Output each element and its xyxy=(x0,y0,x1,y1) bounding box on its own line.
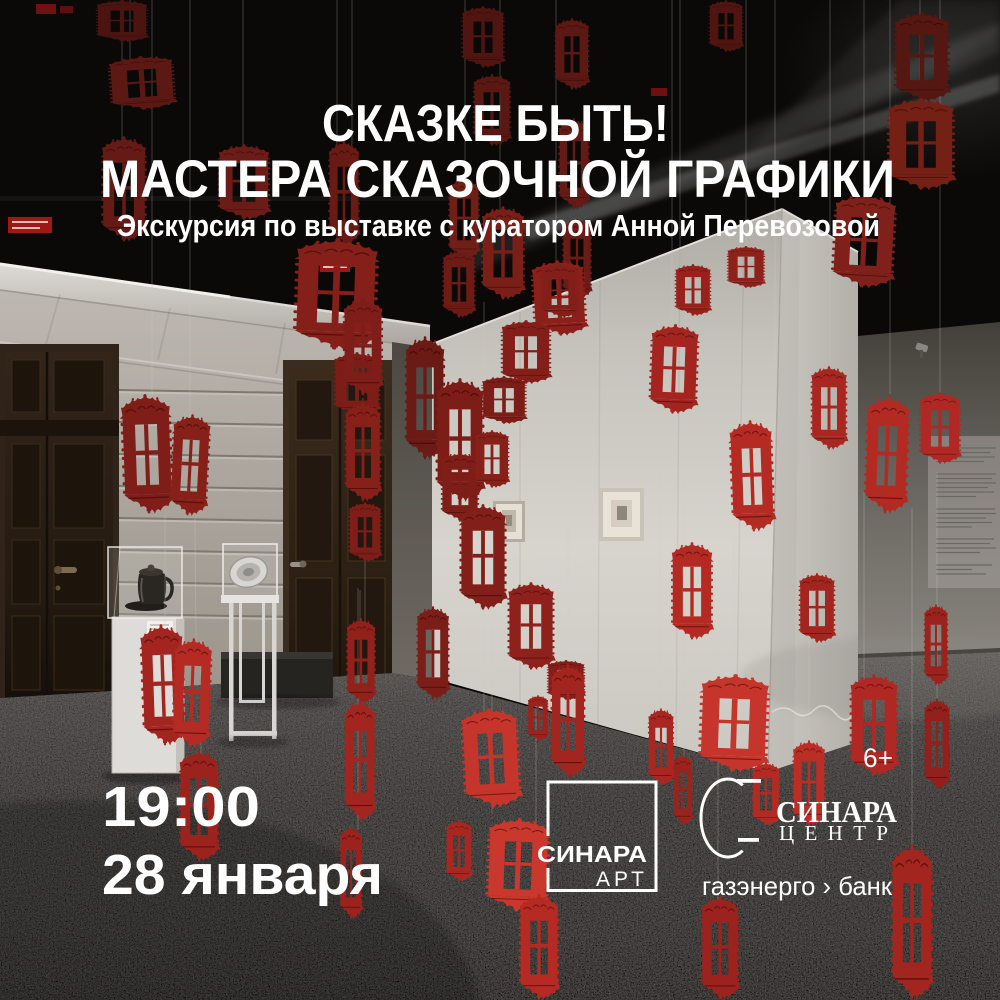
svg-text:28 января: 28 января xyxy=(102,843,383,907)
svg-text:СИНАРА: СИНАРА xyxy=(537,841,647,867)
svg-text:6+: 6+ xyxy=(863,743,893,773)
svg-text:АРТ: АРТ xyxy=(596,868,644,891)
svg-text:МАСТЕРА СКАЗОЧНОЙ ГРАФИКИ: МАСТЕРА СКАЗОЧНОЙ ГРАФИКИ xyxy=(100,150,895,209)
svg-text:19:00: 19:00 xyxy=(102,775,260,839)
svg-text:газэнерго › банк: газэнерго › банк xyxy=(702,871,893,901)
svg-text:Экскурсия по выставке с курато: Экскурсия по выставке с куратором Анной … xyxy=(117,209,880,243)
svg-text:СКАЗКЕ БЫТЬ!: СКАЗКЕ БЫТЬ! xyxy=(322,95,669,153)
